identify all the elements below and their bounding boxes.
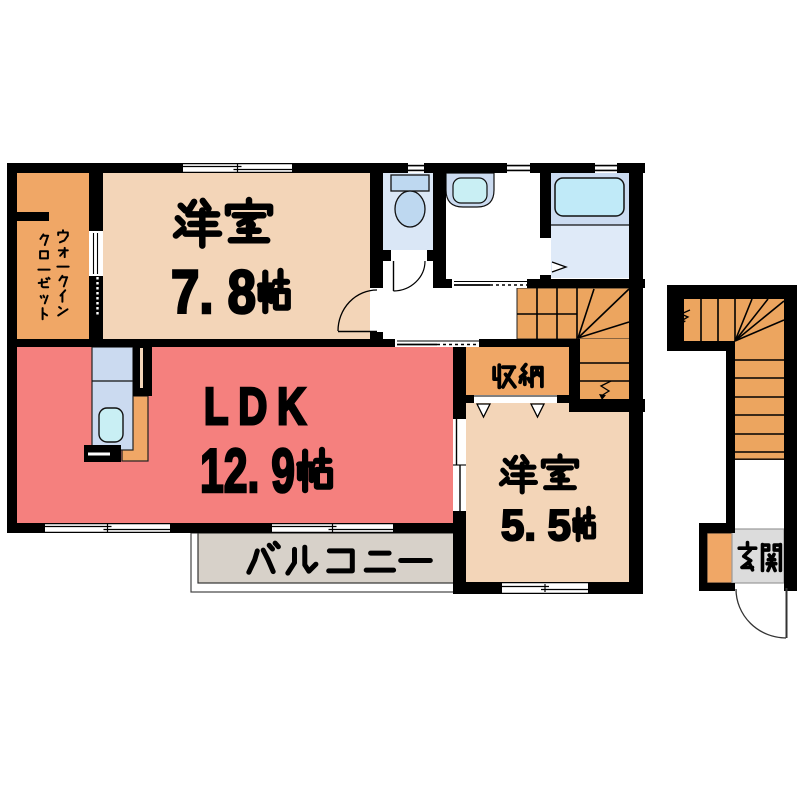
svg-text:7. 8: 7. 8 xyxy=(171,258,256,326)
svg-text:12. 9: 12. 9 xyxy=(200,437,295,506)
svg-text:LDK: LDK xyxy=(204,378,316,436)
svg-text:5. 5: 5. 5 xyxy=(501,501,571,550)
